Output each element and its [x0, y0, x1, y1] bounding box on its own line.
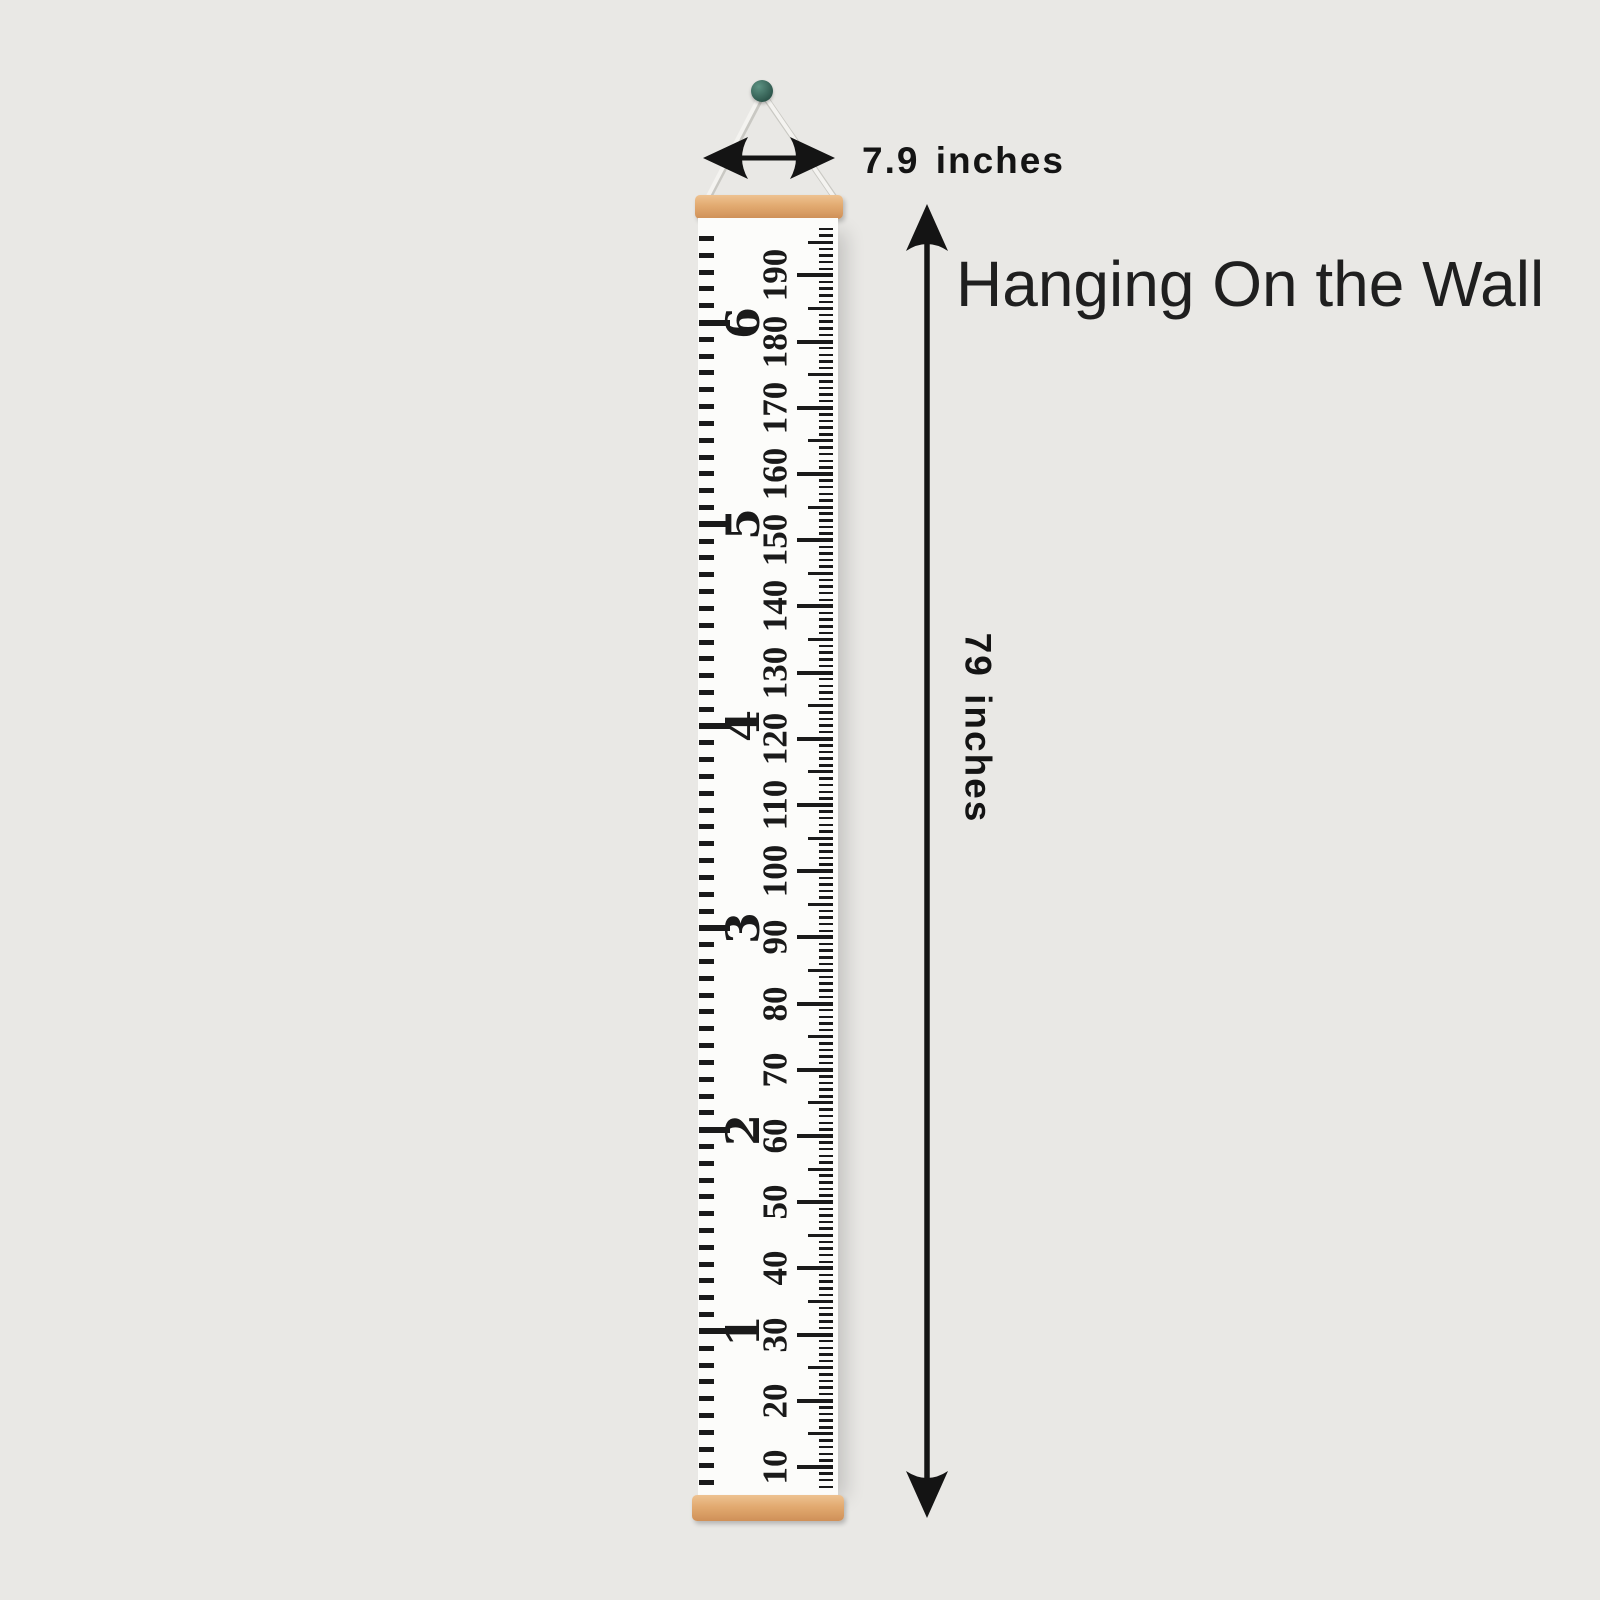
cm-tick: [819, 565, 833, 568]
cm-tick: [797, 1266, 833, 1270]
cm-tick: [808, 837, 833, 840]
inch-tick: [699, 1077, 714, 1082]
cm-tick: [819, 426, 833, 429]
cm-tick: [797, 273, 833, 277]
cm-tick: [819, 1386, 833, 1389]
cm-tick: [797, 538, 833, 542]
cm-tick: [819, 354, 833, 357]
cm-tick: [819, 691, 833, 694]
cm-tick: [819, 559, 833, 562]
cm-tick: [808, 1035, 833, 1038]
cm-tick: [819, 1155, 833, 1158]
inch-tick: [699, 421, 714, 426]
cm-tick: [819, 1016, 833, 1019]
cm-tick: [819, 916, 833, 919]
cm-tick: [808, 903, 833, 906]
cm-tick: [819, 923, 833, 926]
cm-tick: [819, 1181, 833, 1184]
cm-tick: [819, 698, 833, 701]
cm-tick: [819, 248, 833, 251]
inch-tick: [699, 1463, 714, 1468]
cm-tick: [819, 797, 833, 800]
inch-tick: [699, 1144, 714, 1149]
cm-tick: [819, 877, 833, 880]
cm-tick: [808, 704, 833, 707]
inch-tick: [699, 1026, 714, 1031]
cm-tick: [819, 1287, 833, 1290]
inch-tick: [699, 253, 714, 258]
cm-tick: [819, 718, 833, 721]
cm-tick: [819, 678, 833, 681]
inch-tick: [699, 1009, 714, 1014]
cm-tick: [797, 1002, 833, 1006]
inch-tick: [699, 623, 714, 628]
cm-tick: [819, 1413, 833, 1416]
inch-tick: [699, 455, 714, 460]
cm-tick: [819, 460, 833, 463]
cm-tick: [819, 400, 833, 403]
cm-tick: [819, 1453, 833, 1456]
cm-tick: [819, 685, 833, 688]
cm-tick: [819, 552, 833, 555]
cm-tick: [819, 612, 833, 615]
cm-number-label: 40: [758, 1251, 793, 1286]
cm-number-label: 170: [758, 382, 793, 435]
inch-tick: [699, 438, 714, 443]
cm-tick: [819, 1122, 833, 1125]
cm-tick: [797, 737, 833, 741]
cm-number-label: 10: [758, 1450, 793, 1485]
inch-tick: [699, 1480, 714, 1485]
cm-tick: [819, 711, 833, 714]
cm-tick: [819, 453, 833, 456]
foot-number-label: 3: [720, 912, 766, 944]
cm-tick: [819, 413, 833, 416]
cm-tick: [819, 234, 833, 237]
inch-tick: [699, 1043, 714, 1048]
cm-tick: [819, 433, 833, 436]
cm-tick: [819, 301, 833, 304]
bottom-wood-dowel: [692, 1495, 844, 1521]
cm-tick: [808, 969, 833, 972]
cm-tick: [819, 1393, 833, 1396]
cm-tick: [819, 1108, 833, 1111]
cm-tick: [819, 883, 833, 886]
cm-tick: [819, 360, 833, 363]
cm-tick: [819, 645, 833, 648]
cm-tick: [819, 1241, 833, 1244]
cm-tick: [797, 671, 833, 675]
cm-tick: [819, 810, 833, 813]
cm-tick: [819, 757, 833, 760]
inch-tick: [699, 404, 714, 409]
cm-tick: [819, 486, 833, 489]
cm-tick: [819, 896, 833, 899]
cm-tick: [819, 420, 833, 423]
cm-tick: [819, 393, 833, 396]
inch-tick: [699, 1245, 714, 1250]
cm-tick: [819, 1419, 833, 1422]
inch-tick: [699, 1262, 714, 1267]
cm-tick: [808, 373, 833, 376]
cm-tick: [797, 1068, 833, 1072]
wall-pin-icon: [751, 80, 773, 102]
cm-tick: [819, 1221, 833, 1224]
cm-tick: [808, 1234, 833, 1237]
growth-chart-ruler-canvas: 1020304050607080901001101201301401501601…: [698, 218, 838, 1496]
cm-tick: [819, 294, 833, 297]
cm-tick: [819, 1088, 833, 1091]
cm-tick: [808, 1168, 833, 1171]
cm-tick: [819, 1055, 833, 1058]
inch-tick: [699, 1060, 714, 1065]
cm-tick: [819, 287, 833, 290]
inch-tick: [699, 1194, 714, 1199]
cm-tick: [819, 599, 833, 602]
cm-tick: [808, 770, 833, 773]
product-dimension-diagram: 1020304050607080901001101201301401501601…: [0, 0, 1600, 1600]
inch-tick: [699, 303, 714, 308]
cm-number-label: 160: [758, 448, 793, 501]
cm-tick: [819, 1472, 833, 1475]
cm-tick: [797, 1200, 833, 1204]
cm-tick: [819, 1313, 833, 1316]
cm-tick: [819, 1353, 833, 1356]
cm-tick: [819, 963, 833, 966]
cm-number-label: 190: [758, 249, 793, 302]
cm-tick: [819, 1320, 833, 1323]
cm-tick: [819, 976, 833, 979]
cm-number-label: 130: [758, 646, 793, 699]
cm-tick: [819, 1479, 833, 1482]
cm-tick: [819, 579, 833, 582]
inch-tick: [699, 1110, 714, 1115]
cm-tick: [819, 1009, 833, 1012]
inch-tick: [699, 387, 714, 392]
cm-tick: [819, 824, 833, 827]
cm-tick: [819, 956, 833, 959]
cm-tick: [819, 1261, 833, 1264]
cm-tick: [819, 843, 833, 846]
inch-tick: [699, 1312, 714, 1317]
cm-tick: [819, 910, 833, 913]
cm-tick: [819, 744, 833, 747]
inch-tick: [699, 471, 714, 476]
inch-tick: [699, 1178, 714, 1183]
cm-tick: [797, 1465, 833, 1469]
cm-tick: [819, 751, 833, 754]
inch-tick: [699, 808, 714, 813]
cm-tick: [819, 334, 833, 337]
inch-tick: [699, 337, 714, 342]
cm-tick: [819, 943, 833, 946]
cm-tick: [819, 1214, 833, 1217]
cm-tick: [819, 387, 833, 390]
inch-tick: [699, 370, 714, 375]
cm-tick: [819, 592, 833, 595]
inch-tick: [699, 858, 714, 863]
cm-tick: [819, 314, 833, 317]
cm-tick: [797, 869, 833, 873]
cm-tick: [808, 1432, 833, 1435]
cm-tick: [819, 890, 833, 893]
cm-tick: [819, 526, 833, 529]
inch-tick: [699, 1161, 714, 1166]
inch-tick: [699, 841, 714, 846]
cm-tick: [797, 935, 833, 939]
cm-tick: [819, 1247, 833, 1250]
inch-tick: [699, 824, 714, 829]
cm-tick: [819, 1486, 833, 1489]
cm-tick: [819, 791, 833, 794]
cm-number-label: 100: [758, 845, 793, 898]
height-dimension-label: 79 inches: [960, 633, 997, 824]
cm-tick: [819, 1075, 833, 1078]
cm-tick: [808, 439, 833, 442]
cm-number-label: 70: [758, 1052, 793, 1087]
width-dimension-label: 7.9 inches: [862, 142, 1065, 179]
inch-tick: [699, 892, 714, 897]
foot-number-label: 6: [720, 307, 766, 339]
cm-tick: [819, 665, 833, 668]
inch-tick: [699, 1295, 714, 1300]
inch-tick: [699, 976, 714, 981]
cm-tick: [808, 307, 833, 310]
cm-tick: [819, 618, 833, 621]
inch-tick: [699, 909, 714, 914]
cm-tick: [797, 340, 833, 344]
cm-tick: [819, 1161, 833, 1164]
cm-tick: [819, 1360, 833, 1363]
inch-tick: [699, 572, 714, 577]
inch-tick: [699, 1228, 714, 1233]
cm-tick: [819, 367, 833, 370]
inch-tick: [699, 1379, 714, 1384]
cm-tick: [819, 982, 833, 985]
cm-number-label: 80: [758, 986, 793, 1021]
cm-tick: [819, 632, 833, 635]
inch-tick: [699, 757, 714, 762]
cm-tick: [819, 731, 833, 734]
cm-number-label: 50: [758, 1185, 793, 1220]
inch-tick: [699, 1447, 714, 1452]
cm-tick: [819, 1406, 833, 1409]
inch-tick: [699, 1363, 714, 1368]
cm-tick: [819, 519, 833, 522]
inch-tick: [699, 1396, 714, 1401]
cm-tick: [819, 1148, 833, 1151]
cm-tick: [819, 1194, 833, 1197]
inch-tick: [699, 993, 714, 998]
cm-tick: [819, 658, 833, 661]
cm-tick: [819, 1426, 833, 1429]
cm-tick: [819, 446, 833, 449]
cm-tick: [819, 857, 833, 860]
cm-tick: [808, 241, 833, 244]
cm-tick: [819, 1380, 833, 1383]
cm-tick: [819, 1254, 833, 1257]
cm-tick: [819, 1042, 833, 1045]
foot-number-label: 1: [720, 1315, 766, 1347]
cm-tick: [808, 1300, 833, 1303]
cm-tick: [819, 863, 833, 866]
cm-tick: [819, 784, 833, 787]
cm-tick: [819, 1095, 833, 1098]
inch-tick: [699, 1278, 714, 1283]
inch-tick: [699, 1430, 714, 1435]
cm-tick: [819, 1280, 833, 1283]
cm-tick: [819, 268, 833, 271]
cm-tick: [819, 1188, 833, 1191]
cm-tick: [819, 949, 833, 952]
cm-tick: [819, 1208, 833, 1211]
inch-tick: [699, 959, 714, 964]
inch-tick: [699, 942, 714, 947]
cm-tick: [819, 1340, 833, 1343]
cm-tick: [819, 532, 833, 535]
foot-number-label: 2: [720, 1114, 766, 1146]
cm-tick: [819, 1373, 833, 1376]
cm-tick: [819, 1439, 833, 1442]
cm-tick: [819, 1174, 833, 1177]
cm-tick: [819, 1049, 833, 1052]
cm-number-label: 110: [758, 780, 793, 831]
cm-tick: [819, 320, 833, 323]
cm-tick: [819, 466, 833, 469]
inch-tick: [699, 539, 714, 544]
cm-tick: [808, 506, 833, 509]
cm-tick: [819, 1446, 833, 1449]
cm-tick: [797, 604, 833, 608]
cm-tick: [819, 724, 833, 727]
cm-tick: [819, 1294, 833, 1297]
cm-tick: [819, 1062, 833, 1065]
inch-tick: [699, 690, 714, 695]
cm-tick: [808, 1366, 833, 1369]
cm-tick: [819, 479, 833, 482]
cm-tick: [819, 1029, 833, 1032]
cm-tick: [819, 1347, 833, 1350]
cm-tick: [819, 1274, 833, 1277]
cm-tick: [819, 1459, 833, 1462]
cm-tick: [819, 512, 833, 515]
cm-tick: [819, 327, 833, 330]
inch-tick: [699, 791, 714, 796]
cm-tick: [797, 803, 833, 807]
cm-tick: [808, 638, 833, 641]
inch-tick: [699, 707, 714, 712]
cm-tick: [819, 281, 833, 284]
inch-tick: [699, 1211, 714, 1216]
cm-tick: [819, 499, 833, 502]
cm-tick: [797, 1333, 833, 1337]
foot-number-label: 5: [720, 508, 766, 540]
inch-tick: [699, 606, 714, 611]
cm-tick: [819, 228, 833, 231]
cm-tick: [819, 546, 833, 549]
inch-tick: [699, 589, 714, 594]
cm-tick: [819, 625, 833, 628]
cm-tick: [797, 472, 833, 476]
cm-tick: [819, 850, 833, 853]
cm-tick: [819, 777, 833, 780]
cm-tick: [808, 572, 833, 575]
cm-tick: [819, 1128, 833, 1131]
inch-tick: [699, 354, 714, 359]
top-wood-dowel: [695, 195, 843, 219]
cm-tick: [819, 830, 833, 833]
inch-tick: [699, 555, 714, 560]
cm-tick: [819, 347, 833, 350]
inch-tick: [699, 673, 714, 678]
inch-tick: [699, 1413, 714, 1418]
cm-tick: [797, 1134, 833, 1138]
caption-title: Hanging On the Wall: [956, 252, 1544, 316]
cm-tick: [819, 764, 833, 767]
cm-tick: [819, 380, 833, 383]
inch-tick: [699, 1346, 714, 1351]
inch-tick: [699, 740, 714, 745]
cm-tick: [819, 989, 833, 992]
inch-tick: [699, 270, 714, 275]
cm-tick: [819, 996, 833, 999]
cm-tick: [819, 651, 833, 654]
cm-tick: [819, 254, 833, 257]
cm-tick: [819, 1307, 833, 1310]
cm-tick: [797, 406, 833, 410]
inch-tick: [699, 656, 714, 661]
inch-tick: [699, 505, 714, 510]
cm-tick: [819, 493, 833, 496]
cm-number-label: 20: [758, 1383, 793, 1418]
inch-tick: [699, 488, 714, 493]
inch-tick: [699, 774, 714, 779]
cm-tick: [819, 1327, 833, 1330]
cm-number-label: 140: [758, 580, 793, 633]
cm-tick: [819, 930, 833, 933]
inch-tick: [699, 875, 714, 880]
cm-tick: [819, 1141, 833, 1144]
cm-tick: [819, 261, 833, 264]
cm-tick: [819, 817, 833, 820]
cm-tick: [819, 1022, 833, 1025]
cm-tick: [819, 1115, 833, 1118]
inch-tick: [699, 640, 714, 645]
cm-tick: [819, 1082, 833, 1085]
inch-tick: [699, 286, 714, 291]
inch-tick: [699, 236, 714, 241]
cm-tick: [797, 1399, 833, 1403]
cm-tick: [808, 1101, 833, 1104]
cm-tick: [819, 1227, 833, 1230]
foot-number-label: 4: [720, 710, 766, 742]
inch-tick: [699, 1094, 714, 1099]
cm-tick: [819, 585, 833, 588]
